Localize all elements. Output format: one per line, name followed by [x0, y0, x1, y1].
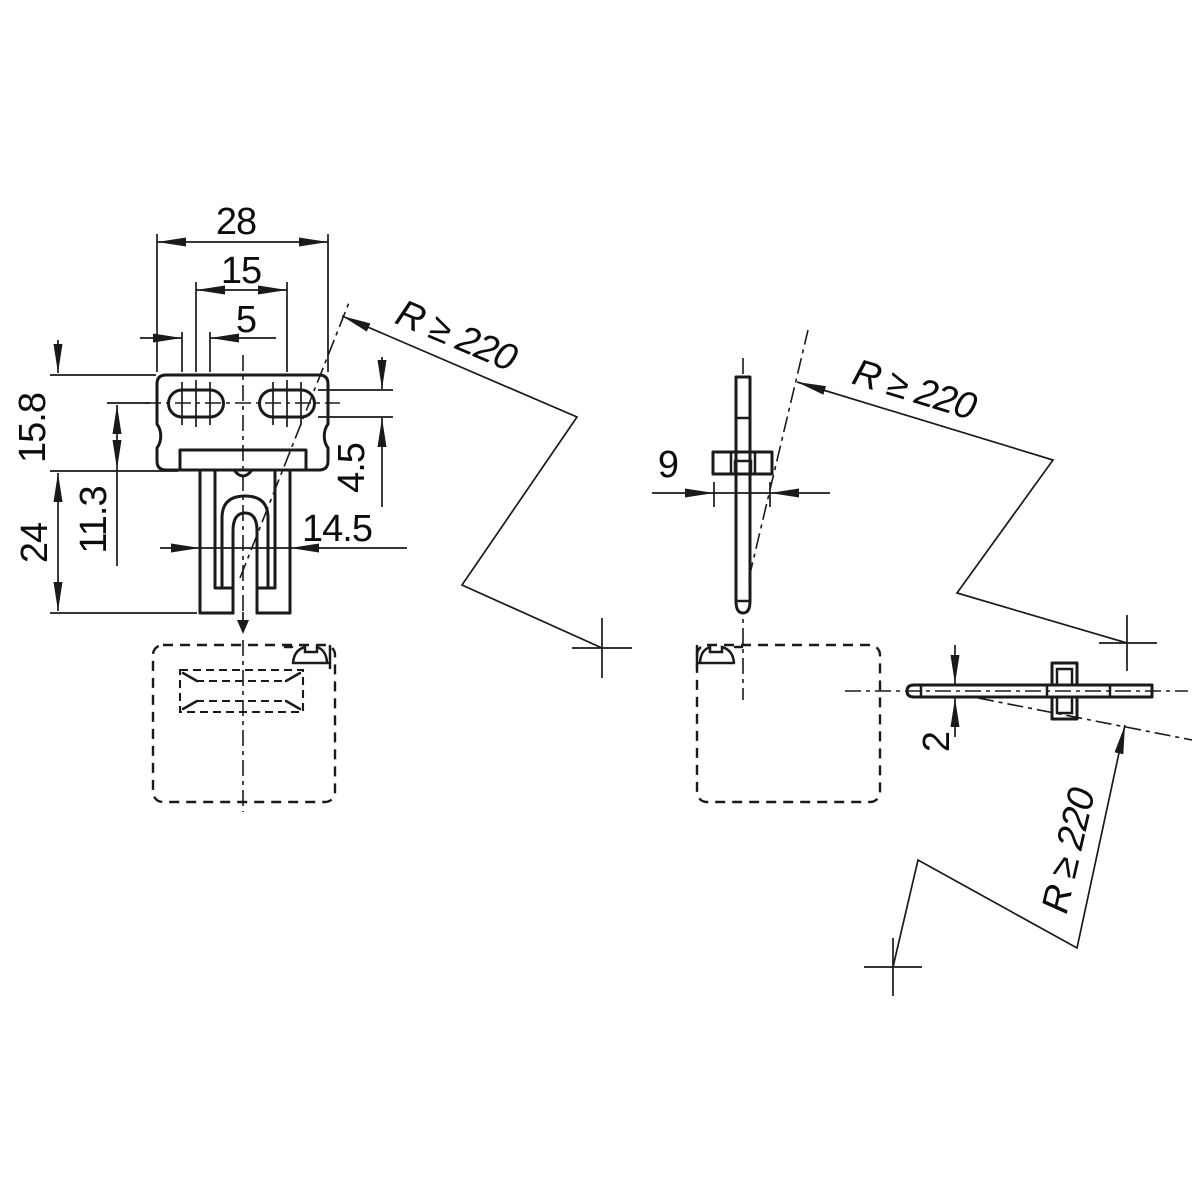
panel-hole-phantom [180, 670, 303, 712]
dim-label-9: 9 [658, 444, 678, 486]
panel-phantom-side [697, 645, 880, 802]
side-strip [736, 377, 750, 613]
dim-label-15-8: 15.8 [12, 393, 54, 463]
hole-corner-marks [183, 673, 300, 709]
technical-drawing-page: 28 15 5 15.8 24 11.3 4.5 14.5 [0, 0, 1200, 1200]
radius-leader-top: R ≥ 220 [864, 725, 1125, 996]
dim-label-24: 24 [14, 522, 56, 563]
dim-label-15: 15 [221, 250, 261, 292]
front-view [145, 300, 350, 634]
clip-bump-front [285, 646, 330, 668]
panel-outline-phantom [153, 645, 335, 802]
dim-label-2: 2 [916, 732, 958, 752]
radius-leader-side: R ≥ 220 [797, 352, 1157, 671]
left-leg [200, 470, 233, 613]
clip-bump-side [697, 646, 742, 668]
insertion-arrow [237, 620, 249, 634]
technical-drawing-canvas: 28 15 5 15.8 24 11.3 4.5 14.5 [0, 0, 1200, 1200]
top-clip-upper-inner [1057, 669, 1072, 685]
u-slot-inner [233, 513, 257, 613]
panel-phantom-front [153, 640, 335, 812]
dim-label-11-3: 11.3 [73, 486, 115, 553]
leader-line [342, 316, 602, 648]
dim-label-5: 5 [236, 299, 256, 341]
radius-label-top: R ≥ 220 [1034, 784, 1103, 917]
dim-label-28: 28 [216, 201, 256, 243]
bend-line-side [749, 330, 808, 578]
u-slot-outer [222, 496, 268, 588]
bend-line-top [978, 698, 1192, 740]
panel-outline-phantom [697, 645, 880, 802]
radius-leader-front: R ≥ 220 [342, 292, 632, 678]
radius-label-front: R ≥ 220 [390, 292, 523, 380]
top-view: 2 [845, 645, 1192, 752]
dim-label-14-5: 14.5 [302, 508, 372, 550]
top-clip-lower-inner [1057, 697, 1072, 713]
dim-label-4-5: 4.5 [331, 443, 373, 493]
